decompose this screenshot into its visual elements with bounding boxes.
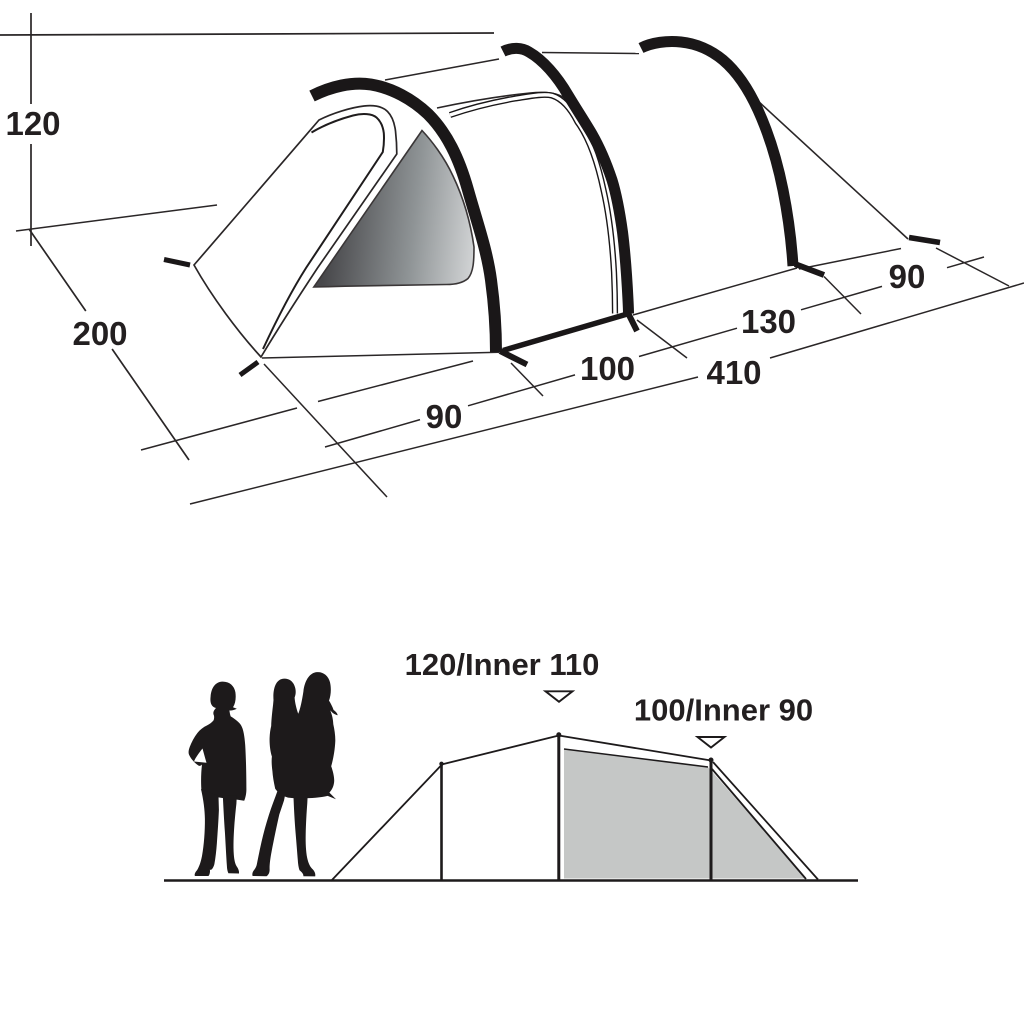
svg-text:120/Inner 110: 120/Inner 110 [405,647,600,682]
svg-text:100/Inner 90: 100/Inner 90 [634,693,813,728]
svg-text:200: 200 [72,315,127,352]
svg-text:410: 410 [706,354,761,391]
svg-text:120: 120 [5,105,60,142]
svg-text:90: 90 [889,258,926,295]
svg-text:90: 90 [426,398,463,435]
svg-text:130: 130 [741,303,796,340]
svg-text:100: 100 [580,350,635,387]
